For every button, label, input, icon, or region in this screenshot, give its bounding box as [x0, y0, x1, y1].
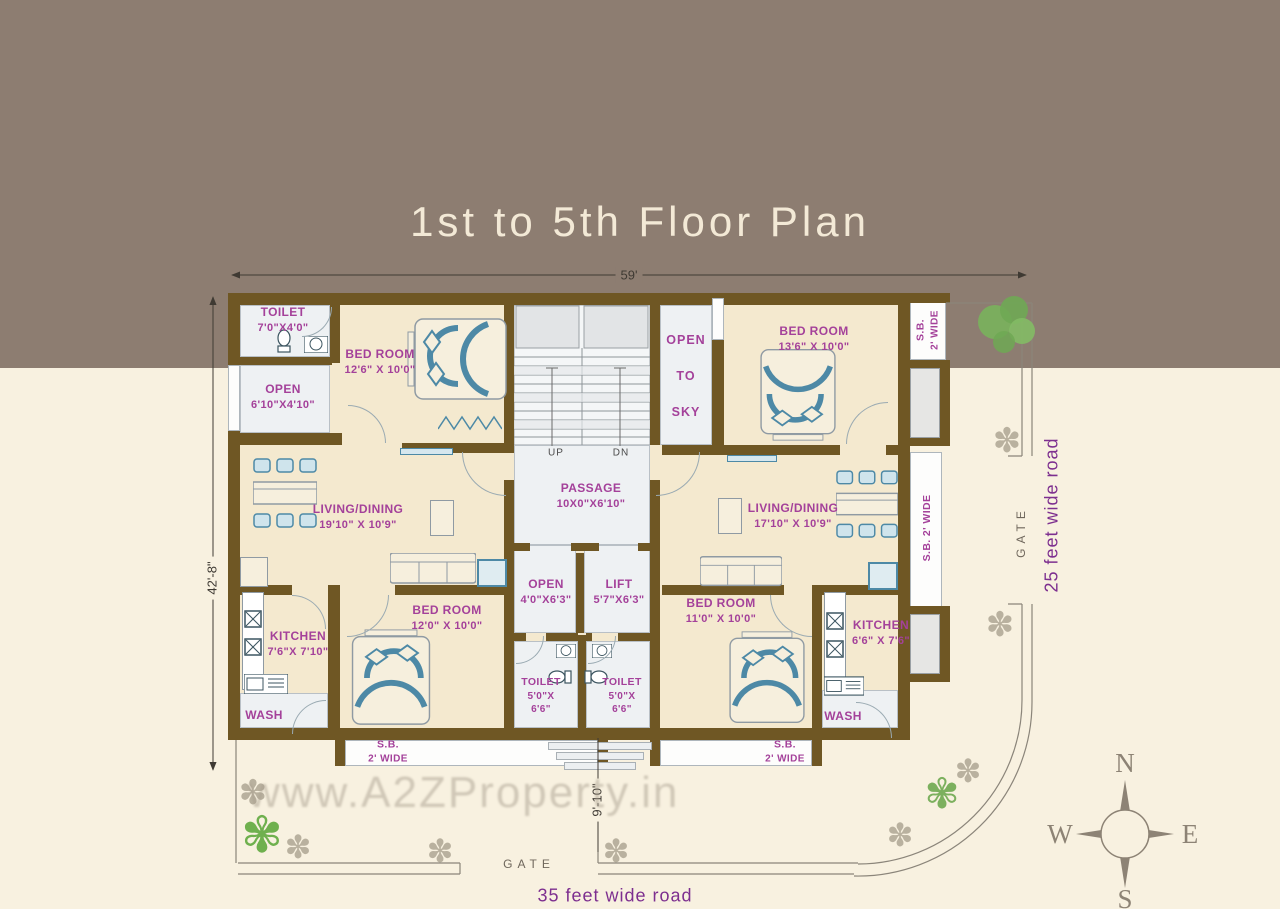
floor-plan-page: { "title": "1st to 5th Floor Plan", "wat… [0, 0, 1280, 909]
wall-segment [571, 543, 599, 551]
entry-step [556, 752, 644, 760]
window-sill-open-to-sky [712, 298, 724, 340]
stove-icon [826, 640, 844, 658]
wall-segment [812, 585, 822, 728]
wall-segment [508, 543, 530, 551]
sink-icon [244, 674, 288, 694]
wall-segment [712, 340, 724, 445]
window-zigzag [438, 415, 502, 431]
window-sill-open-left [228, 365, 240, 431]
bed-icon [725, 630, 809, 726]
wall-segment [330, 305, 340, 363]
wall-segment [650, 305, 660, 445]
staircase [514, 305, 650, 445]
wall-segment [618, 633, 650, 641]
room-open-middle-floor [514, 545, 576, 633]
wall-segment [812, 740, 822, 766]
wall-segment [240, 357, 332, 365]
tv-unit [727, 455, 777, 462]
tv-unit [400, 448, 453, 455]
room-open-top-left-floor [240, 365, 330, 433]
watermark: www.A2ZProperty.in [248, 768, 679, 818]
bed-icon [406, 314, 510, 404]
window-bay-glass [910, 614, 940, 674]
stove-icon [826, 612, 844, 630]
fridge [240, 557, 268, 587]
dining-table-icon [836, 470, 898, 540]
stove-icon [244, 638, 262, 656]
wall-segment [576, 553, 584, 633]
balcony-right [910, 452, 942, 608]
sofa-icon [390, 553, 476, 585]
corner-table [868, 562, 898, 590]
wall-segment [638, 543, 660, 551]
room-passage-floor [514, 445, 650, 545]
toilet-wc-icon [276, 328, 292, 354]
toilet-wc-icon [547, 669, 573, 685]
toilet-basin-icon [556, 644, 576, 658]
side-table [718, 498, 742, 534]
bed-icon [346, 628, 436, 728]
wall-segment [546, 633, 578, 641]
corner-table [477, 559, 507, 587]
wall-segment [335, 740, 345, 766]
side-table [430, 500, 454, 536]
room-lift-floor [584, 545, 650, 633]
entry-step [548, 742, 652, 750]
toilet-wc-icon [583, 669, 609, 685]
dining-table-icon [253, 458, 317, 530]
room-open-to-sky-floor [660, 305, 712, 445]
stove-icon [244, 610, 262, 628]
wall-segment [886, 445, 898, 455]
sofa-icon [700, 556, 782, 588]
sink-icon [824, 676, 864, 696]
wall-segment [228, 433, 342, 445]
window-bay-glass [910, 368, 940, 438]
balcony-top-right [910, 298, 946, 360]
wall-segment [328, 585, 340, 728]
bed-icon [756, 346, 840, 442]
wall-segment [650, 545, 660, 728]
toilet-basin-icon [304, 336, 328, 353]
balcony-bottom-right [660, 740, 812, 766]
wall-segment [898, 293, 950, 303]
